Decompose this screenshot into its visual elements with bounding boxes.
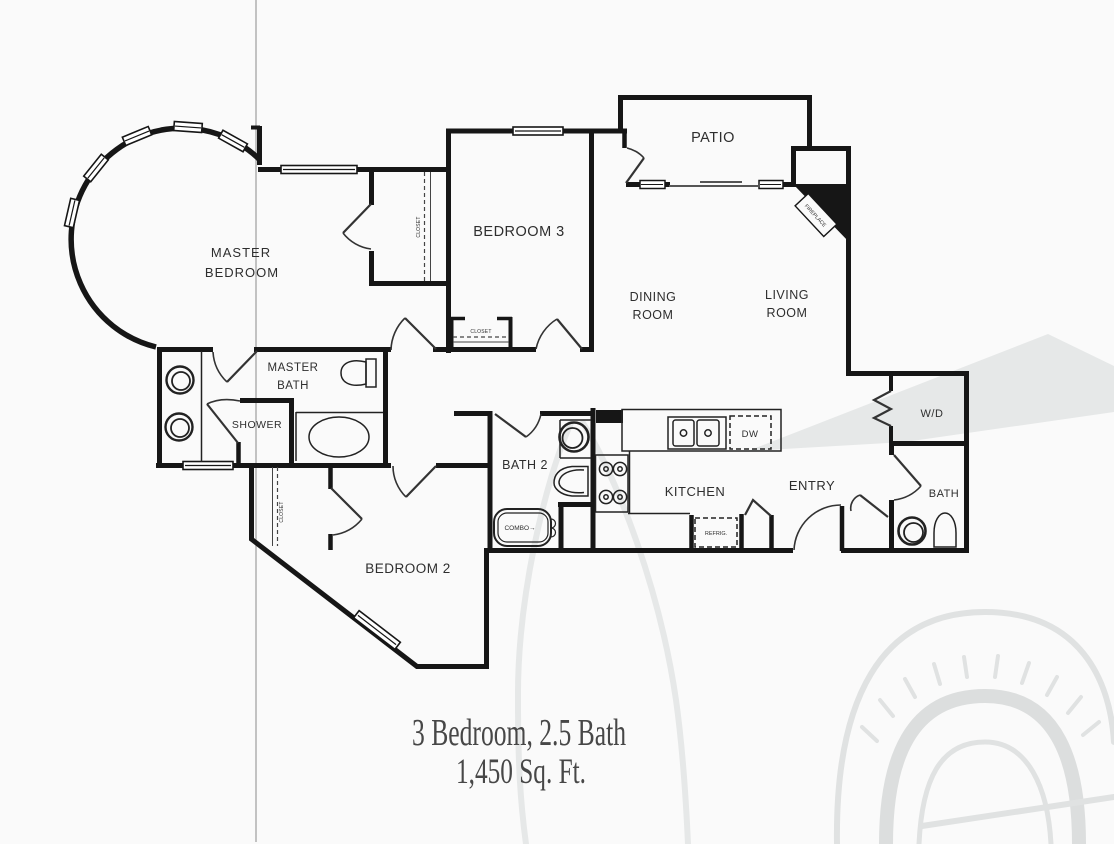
svg-text:ENTRY: ENTRY: [789, 478, 835, 493]
svg-text:DW: DW: [742, 429, 759, 440]
svg-text:LIVING: LIVING: [765, 288, 809, 302]
svg-text:BEDROOM: BEDROOM: [205, 265, 279, 280]
svg-text:BATH: BATH: [929, 488, 960, 500]
svg-text:MASTER: MASTER: [268, 362, 319, 374]
svg-text:COMBO→: COMBO→: [504, 525, 535, 532]
svg-text:BATH: BATH: [277, 380, 309, 392]
svg-text:BATH 2: BATH 2: [502, 458, 548, 472]
svg-text:CLOSET: CLOSET: [279, 501, 285, 522]
svg-text:CLOSET: CLOSET: [470, 329, 491, 335]
svg-text:SHOWER: SHOWER: [232, 419, 282, 431]
svg-text:KITCHEN: KITCHEN: [665, 484, 726, 499]
svg-text:3 Bedroom, 2.5 Bath: 3 Bedroom, 2.5 Bath: [412, 712, 626, 754]
svg-text:BEDROOM 2: BEDROOM 2: [365, 561, 451, 576]
svg-text:ROOM: ROOM: [767, 306, 808, 320]
svg-text:ROOM: ROOM: [633, 308, 674, 322]
svg-text:PATIO: PATIO: [691, 130, 735, 146]
svg-text:BEDROOM 3: BEDROOM 3: [473, 224, 565, 240]
svg-text:1,450 Sq. Ft.: 1,450 Sq. Ft.: [456, 751, 586, 791]
svg-text:MASTER: MASTER: [211, 245, 271, 260]
svg-text:CLOSET: CLOSET: [416, 216, 422, 237]
svg-text:REFRIG.: REFRIG.: [705, 531, 728, 537]
svg-text:DINING: DINING: [630, 290, 677, 304]
svg-text:W/D: W/D: [921, 408, 944, 420]
